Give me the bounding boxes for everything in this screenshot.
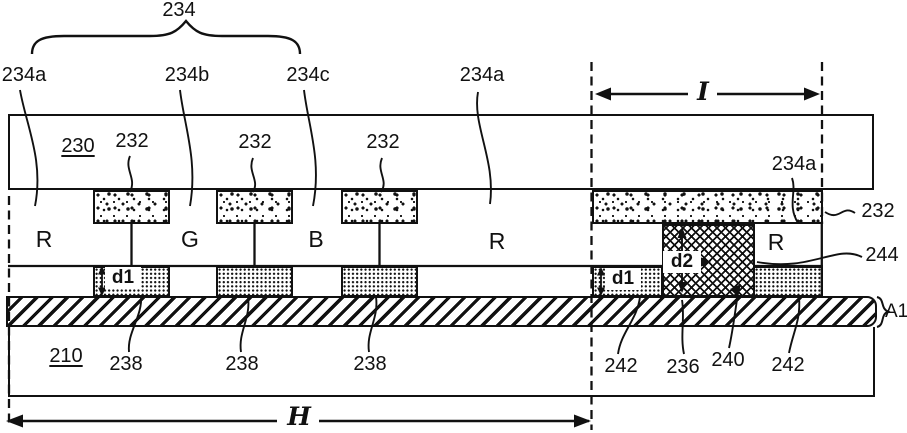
label-dim-i: I [688, 79, 718, 105]
label-region-b: B [304, 227, 328, 251]
label-dim-h: H [278, 404, 320, 430]
label-238-3: 238 [350, 354, 390, 375]
label-d1-left: d1 [105, 267, 141, 289]
label-234a-topcenter: 234a [457, 65, 507, 86]
label-232-3: 232 [361, 132, 405, 153]
label-230: 230 [56, 136, 100, 157]
label-240: 240 [708, 350, 748, 371]
label-d1-right: d1 [605, 268, 641, 290]
label-234-group: 234 [149, 0, 209, 21]
label-region-r1: R [32, 227, 56, 251]
label-236: 236 [663, 357, 703, 378]
label-234a-topleft: 234a [0, 65, 48, 86]
leader-240-arrowhead [730, 284, 741, 297]
label-234a-right: 234a [768, 154, 820, 175]
label-232-1: 232 [110, 131, 154, 152]
dimension-d1-arrow-right [597, 267, 605, 296]
patent-figure: 234 234a 234b 234c 234a 230 232 232 232 … [0, 0, 907, 433]
label-region-g: G [178, 227, 202, 251]
label-242-right: 242 [768, 355, 808, 376]
label-region-r2: R [485, 229, 509, 253]
label-232-2: 232 [233, 132, 277, 153]
brace-234 [32, 21, 300, 54]
label-242-left: 242 [601, 356, 641, 377]
label-210: 210 [43, 346, 89, 367]
label-232-right: 232 [856, 201, 900, 222]
label-234b: 234b [162, 65, 212, 86]
label-region-r3: R [764, 230, 788, 254]
label-a1: A1 [885, 302, 907, 322]
label-d2: d2 [663, 251, 701, 273]
label-234c: 234c [283, 65, 333, 86]
label-238-1: 238 [106, 354, 146, 375]
label-244: 244 [860, 245, 904, 266]
label-238-2: 238 [222, 354, 262, 375]
